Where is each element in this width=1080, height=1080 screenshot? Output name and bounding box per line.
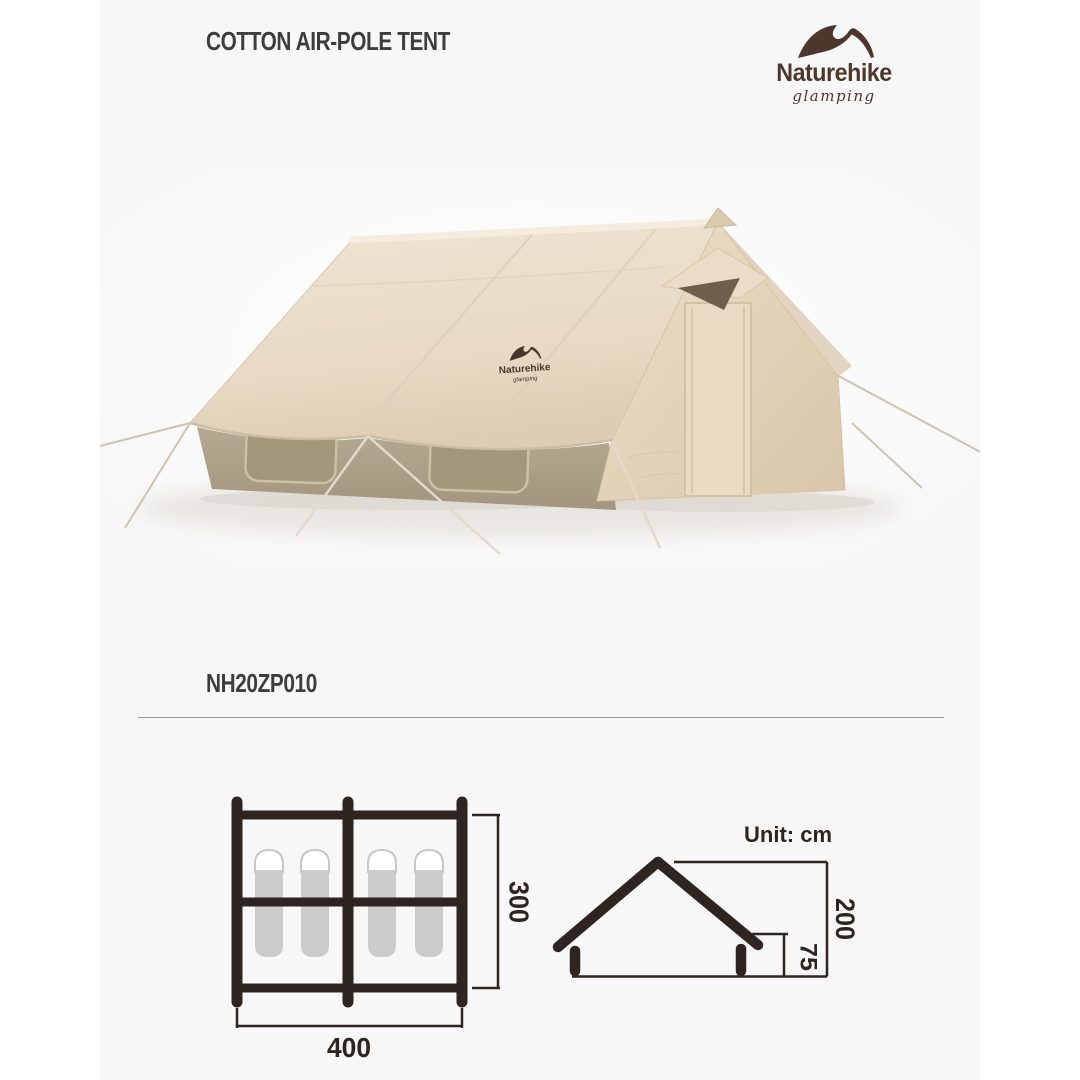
elevation-outline [558, 862, 827, 977]
floor-plan-frame [237, 802, 462, 1002]
page-title: COTTON AIR-POLE TENT [206, 26, 450, 57]
floor-plan-diagram: 300 400 [237, 802, 535, 1063]
mountain-logo-icon [792, 22, 876, 60]
tent-door [685, 303, 751, 496]
spec-diagrams: 300 400 Unit: cm [100, 760, 980, 1080]
divider [138, 717, 944, 718]
floor-plan-width-label: 400 [327, 1032, 371, 1063]
tent-photo: Naturehike glamping [100, 168, 980, 568]
brand-logo: Naturehike glamping [764, 22, 904, 105]
elevation-wall-label: 75 [795, 943, 822, 971]
floor-plan-depth-label: 300 [504, 881, 535, 923]
brand-tagline: glamping [764, 87, 904, 105]
model-number: NH20ZP010 [206, 668, 317, 699]
page: COTTON AIR-POLE TENT Naturehike glamping [0, 0, 1080, 1080]
floor-plan-depth-dimension [472, 815, 500, 988]
brand-name: Naturehike [769, 60, 899, 86]
elevation-height-label: 200 [830, 898, 860, 940]
content-panel: COTTON AIR-POLE TENT Naturehike glamping [100, 0, 980, 1080]
unit-label: Unit: cm [744, 822, 832, 847]
elevation-diagram: Unit: cm 200 [558, 822, 860, 977]
floor-plan-width-dimension [237, 1008, 462, 1028]
